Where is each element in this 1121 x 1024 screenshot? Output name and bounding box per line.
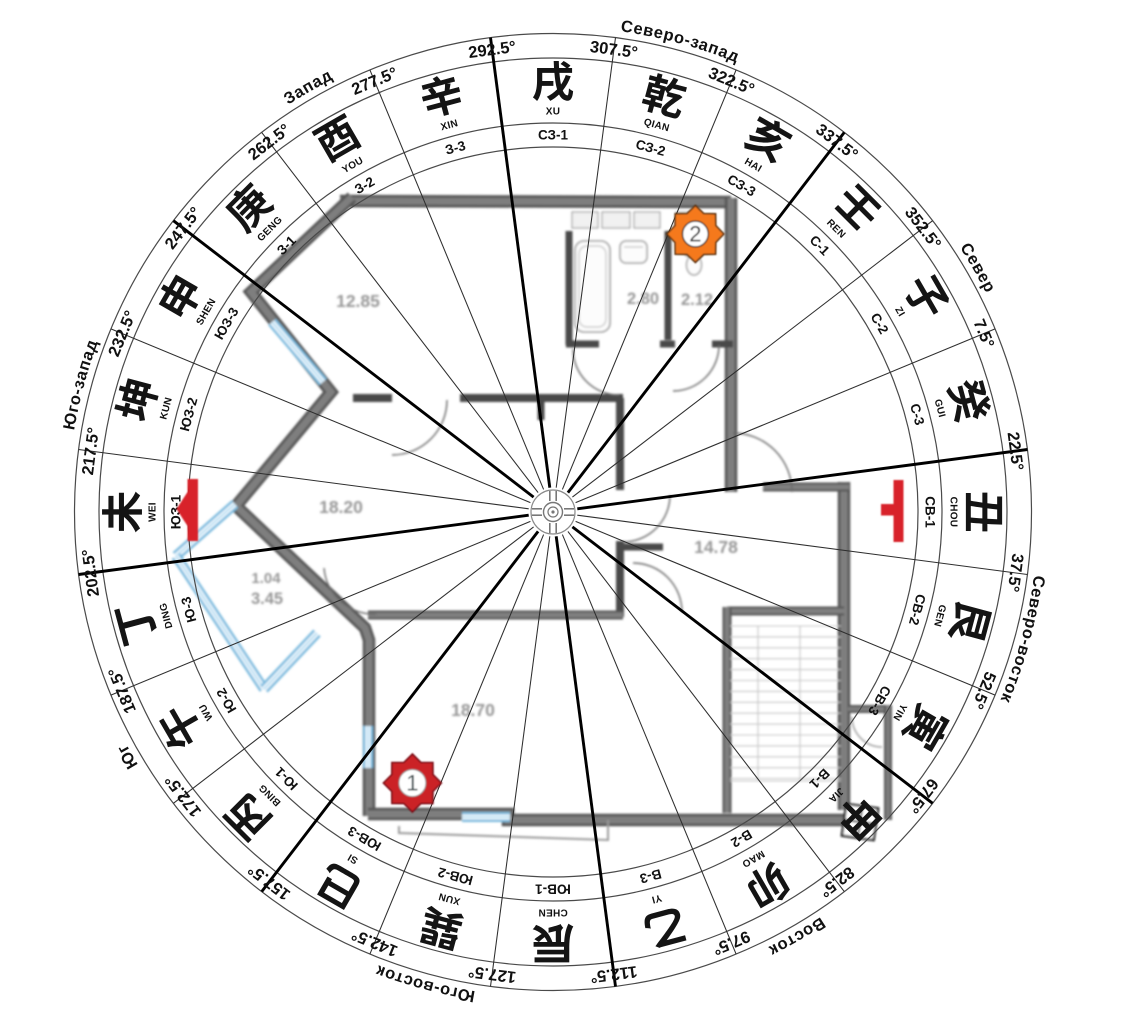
- svg-text:1.04: 1.04: [251, 570, 281, 587]
- svg-text:2: 2: [689, 222, 701, 247]
- svg-text:XU: XU: [546, 107, 561, 118]
- svg-text:14.78: 14.78: [694, 537, 738, 557]
- svg-text:18.70: 18.70: [451, 700, 495, 720]
- svg-text:2.80: 2.80: [627, 290, 659, 308]
- svg-text:CHOU: CHOU: [948, 497, 959, 528]
- svg-text:1: 1: [406, 771, 418, 796]
- svg-text:ЮВ-1: ЮВ-1: [535, 882, 571, 897]
- svg-text:СЗ-1: СЗ-1: [538, 128, 569, 143]
- svg-text:18.20: 18.20: [319, 497, 363, 517]
- svg-text:3.45: 3.45: [251, 590, 283, 608]
- svg-text:CHEN: CHEN: [538, 907, 568, 918]
- svg-text:12.85: 12.85: [336, 291, 380, 311]
- svg-text:WEI: WEI: [148, 502, 159, 522]
- svg-text:СВ-1: СВ-1: [923, 496, 938, 528]
- svg-text:2.12: 2.12: [681, 291, 713, 309]
